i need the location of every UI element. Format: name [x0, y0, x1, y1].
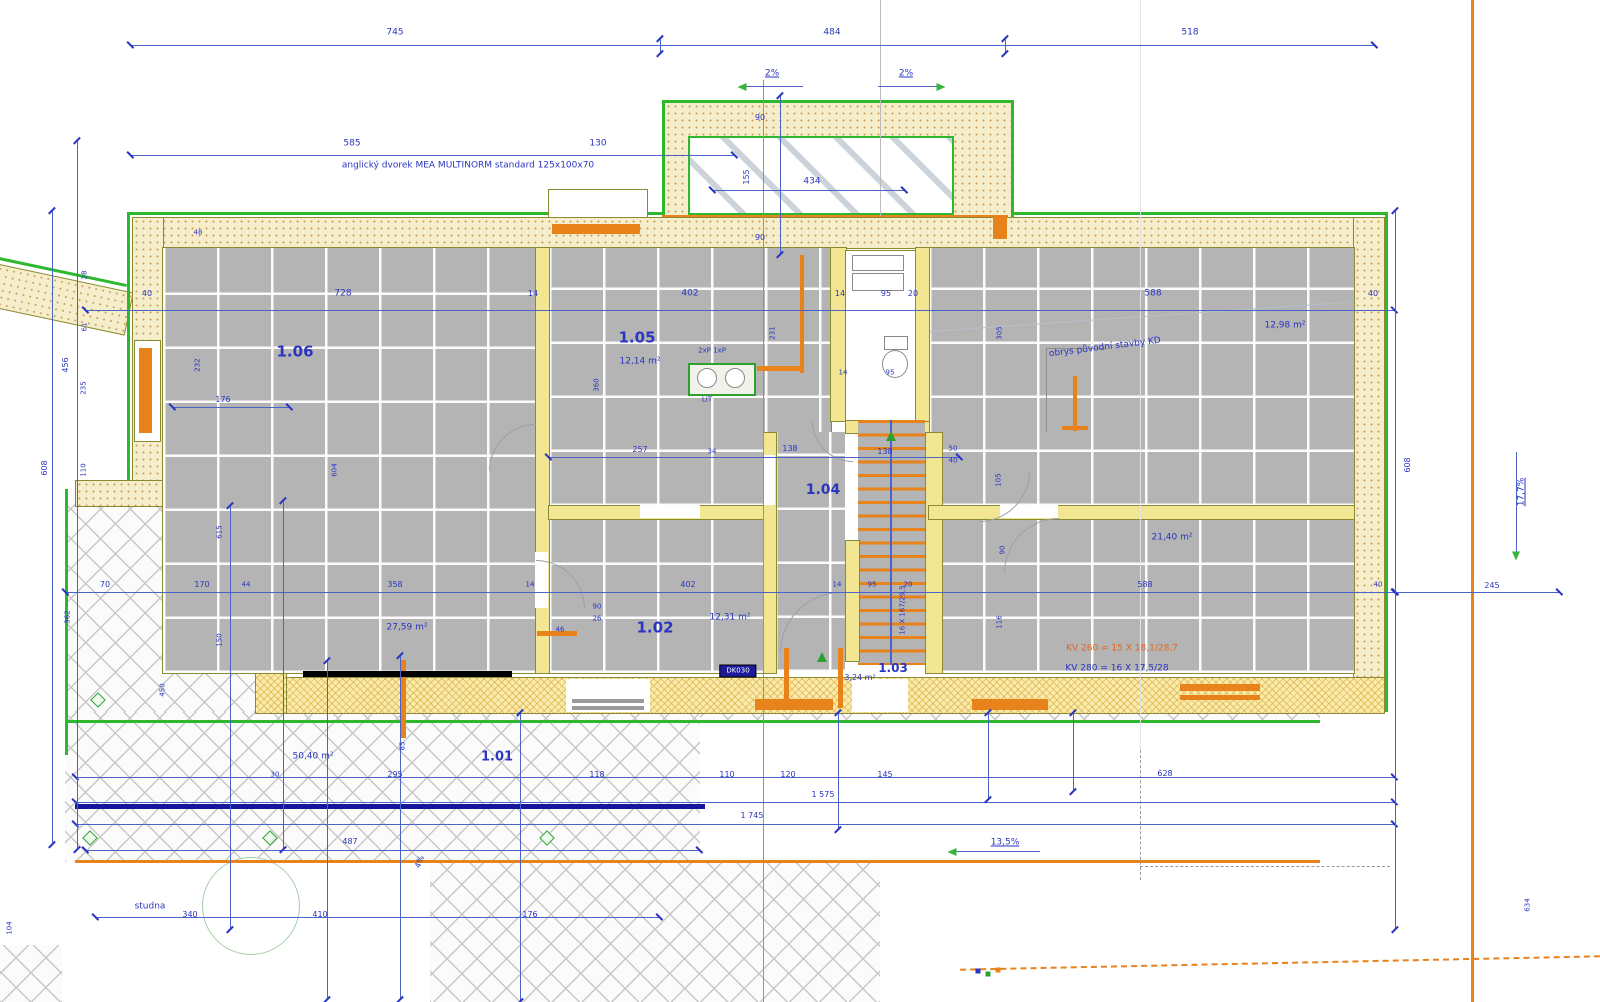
dim-line	[172, 407, 290, 408]
dimension-label: 138	[782, 445, 797, 453]
dimension-label: 295	[387, 771, 402, 779]
wall-bath-east	[915, 247, 930, 422]
dim-line	[85, 850, 700, 851]
wc-tank-icon	[884, 336, 908, 350]
pipe-right-h	[1062, 426, 1088, 430]
dimension-label: 588	[1144, 290, 1161, 299]
dim-line	[75, 824, 1395, 825]
dimension-label: 46	[556, 627, 565, 634]
dimension-label: 14	[835, 290, 845, 298]
paving-bottom	[430, 862, 880, 1002]
window-porch-right	[993, 217, 1007, 239]
dimension-label: 118	[589, 771, 604, 779]
dormer-box	[548, 189, 648, 218]
room-1-06	[162, 247, 537, 674]
dimension-label: 176	[215, 396, 230, 404]
window-left	[139, 348, 152, 433]
dim-line	[65, 592, 1395, 593]
dimension-label: 138	[877, 448, 892, 456]
building-outline-left	[127, 212, 130, 492]
slope-4pct: 4%	[414, 855, 426, 870]
dimension-label: 402	[680, 581, 695, 589]
retaining-wall-line	[75, 804, 705, 809]
entry-door-leaf	[572, 699, 644, 703]
shelf-icon	[852, 273, 904, 291]
building-outline-right	[1385, 212, 1388, 712]
dimension-label: 116	[997, 615, 1004, 628]
dimension-label: 728	[334, 290, 351, 299]
area-1-05: 12,14 m²	[619, 358, 660, 367]
dimension-label: 14	[526, 582, 535, 589]
dimension-label: 110	[719, 771, 734, 779]
dimension-label: 402	[681, 290, 698, 299]
dim-line	[75, 802, 1395, 803]
center-axis	[763, 80, 764, 1002]
dimension-label: 40	[142, 290, 152, 298]
door-frame-right	[838, 648, 843, 708]
dimension-label: 90	[593, 604, 602, 611]
dimension-label: 34	[708, 449, 717, 456]
dimension-label: 90	[755, 114, 765, 122]
dim-tick	[660, 38, 661, 54]
dim-line	[780, 95, 781, 255]
dimension-label: 245	[1484, 582, 1499, 590]
dimension-label: 170	[194, 581, 209, 589]
dimension-label: 588	[1137, 581, 1152, 589]
existing-wall-line	[303, 671, 512, 677]
dimension-label: 20	[904, 582, 913, 589]
dimension-label: 30	[271, 772, 280, 779]
dimension-label: 90	[1000, 546, 1007, 555]
dimension-label: 360	[594, 378, 601, 391]
boundary-line-right	[1471, 0, 1474, 1002]
dimension-label: 105	[996, 473, 1003, 486]
dim-518: 518	[1181, 29, 1198, 38]
dim-line	[130, 155, 735, 156]
dimension-label: 95	[881, 290, 891, 298]
dim-line	[52, 210, 53, 845]
dimension-label: 305	[997, 326, 1004, 339]
dimension-label: LIT	[702, 397, 712, 404]
paving-corner	[0, 945, 62, 1002]
dimension-label: 61	[82, 323, 89, 332]
dimension-label: 456	[62, 357, 70, 372]
dim-line	[1395, 210, 1396, 930]
dimension-label: 14	[528, 290, 538, 298]
dimension-label: 28	[82, 271, 89, 280]
dimension-label: 232	[195, 358, 202, 371]
dashed-line-right-v	[1140, 750, 1141, 880]
dimension-label: 40	[949, 458, 958, 465]
dimension-label: 608	[41, 460, 49, 475]
sink-left-icon	[697, 368, 717, 388]
dimension-label: 40	[1374, 582, 1383, 589]
dimension-label: 50	[949, 446, 958, 453]
site-line-bottom	[75, 860, 1320, 863]
stair-note-blue: KV 280 = 16 X 17,5/28	[1065, 665, 1168, 674]
pipe-right-v	[1073, 376, 1077, 431]
porch-glazing	[688, 136, 954, 215]
dim-484: 484	[823, 29, 840, 38]
dim-tick	[1005, 38, 1006, 54]
dimension-label: 130	[589, 140, 606, 149]
dimension-label: 90	[755, 234, 765, 242]
door-frame-left	[784, 648, 789, 708]
dim-line	[712, 190, 905, 191]
dimension-label: 44	[242, 582, 251, 589]
dim-line	[95, 917, 660, 918]
paving-terrace	[65, 712, 700, 862]
dim-line	[520, 712, 521, 1002]
dim-line	[130, 45, 1375, 46]
well-circle	[202, 857, 300, 955]
dimension-label: 231	[770, 326, 777, 339]
stair-stringer	[845, 540, 860, 662]
stair-door-gap	[852, 679, 908, 712]
room-number-1-01: 1.01	[481, 751, 513, 764]
dim-line	[327, 660, 328, 1000]
dim-line	[1073, 712, 1074, 792]
room-number-1-06: 1.06	[276, 345, 313, 360]
dimension-label: 1 575	[812, 791, 835, 799]
window-bottom-3b	[1180, 695, 1260, 700]
arrow-down-icon	[1512, 552, 1520, 561]
dot-icon	[996, 968, 1001, 973]
element-badge: DK030	[719, 665, 756, 678]
dimension-label: 20	[908, 290, 918, 298]
dimension-label: 150	[217, 633, 224, 646]
dim-line	[1395, 592, 1560, 593]
dimension-label: 155	[743, 169, 751, 184]
dimension-label: 1 745	[741, 812, 764, 820]
slope-17-7pct: 17,7%	[1518, 478, 1527, 507]
wall-stair-east	[925, 432, 943, 674]
dot-icon	[986, 972, 991, 977]
arrow-right-icon	[937, 83, 946, 91]
dimension-label: 604	[332, 463, 339, 476]
dimension-label: 615	[217, 525, 224, 538]
arrow-left-icon	[738, 83, 747, 91]
terrace-outline-bottom	[65, 720, 1320, 723]
washer-icon	[852, 255, 904, 271]
slope-line-2a	[745, 86, 803, 87]
dimension-label: 176	[522, 911, 537, 919]
passage-kitchen	[640, 505, 700, 518]
dimension-label: 14	[833, 582, 842, 589]
dim-line	[230, 505, 231, 930]
dimension-label: 70	[100, 581, 110, 589]
arrow-left-icon	[948, 848, 957, 856]
dim-745: 745	[386, 29, 403, 38]
window-bottom-1	[755, 699, 833, 710]
dot-icon	[976, 969, 981, 974]
dimension-label: 40	[1368, 290, 1378, 298]
slope-2pct-right: 2%	[899, 70, 913, 79]
dimension-label: 362	[65, 610, 72, 623]
dim-line	[548, 457, 960, 458]
dimension-label: 85	[400, 742, 407, 751]
dimension-label: 95	[868, 582, 877, 589]
dimension-label: 585	[343, 140, 360, 149]
room-number-1-03: 1.03	[878, 662, 908, 674]
dim-line	[85, 310, 1395, 311]
dimension-label: 2xP 1xP	[698, 348, 726, 355]
dim-line	[988, 712, 989, 800]
area-1-02: 12,31 m²	[709, 614, 750, 623]
dimension-label: 120	[780, 771, 795, 779]
note-well: studna	[135, 903, 166, 912]
dimension-label: 628	[1157, 770, 1172, 778]
dimension-label: 358	[387, 581, 402, 589]
dimension-label: 110	[81, 463, 88, 476]
dimension-label: 104	[7, 921, 14, 934]
slope-line-2b	[878, 86, 938, 87]
dim-line	[838, 712, 839, 830]
tri-up-icon	[817, 652, 827, 662]
stair-spec: 16 X 167/29,5	[900, 585, 907, 634]
area-right-bottom: 21,40 m²	[1151, 534, 1192, 543]
door-gap-1-04	[763, 455, 775, 505]
note-english-area: anglický dvorek MEA MULTINORM standard 1…	[342, 162, 594, 171]
slope-2pct-left: 2%	[765, 70, 779, 79]
dimension-label: 410	[312, 911, 327, 919]
window-bottom-2	[972, 699, 1048, 710]
tri-up-icon	[886, 431, 896, 441]
wall-1-06-1-05	[535, 247, 550, 674]
dimension-label: 634	[1525, 898, 1532, 911]
dimension-label: 450	[160, 683, 167, 696]
dimension-label: 487	[342, 838, 357, 846]
slope-line-13-5	[955, 851, 1040, 852]
section-line-right	[1140, 0, 1141, 750]
dimension-label: 434	[803, 178, 820, 187]
dimension-label: 340	[182, 911, 197, 919]
dimension-label: 608	[1404, 457, 1412, 472]
room-number-1-04: 1.04	[806, 483, 841, 497]
dim-line	[400, 655, 401, 1000]
dimension-label: 145	[877, 771, 892, 779]
area-1-03: 3,24 m²	[844, 674, 875, 682]
dimension-label: 95	[886, 370, 895, 377]
section-line-top	[880, 0, 881, 216]
sink-right-icon	[725, 368, 745, 388]
room-number-1-02: 1.02	[636, 621, 673, 636]
window-bottom-3a	[1180, 684, 1260, 691]
dim-line	[77, 140, 78, 850]
floor-plan-canvas: 7454845182%2%585130anglický dvorek MEA M…	[0, 0, 1600, 1002]
room-right-top	[928, 247, 1355, 507]
dimension-label: 14	[839, 370, 848, 377]
dimension-label: 48	[194, 230, 203, 237]
entry-door-leaf2	[572, 706, 644, 710]
area-1-06: 27,59 m²	[386, 624, 427, 633]
pipe-kitchen-v	[800, 255, 804, 373]
area-1-01: 50,40 m²	[292, 753, 333, 762]
boundary-dashed-bottom	[960, 955, 1600, 970]
area-right-top: 12,98 m²	[1264, 322, 1305, 331]
dim-line	[283, 500, 284, 850]
dimension-label: 26	[593, 616, 602, 623]
dashed-rect-right	[1140, 866, 1390, 867]
room-number-1-05: 1.05	[618, 331, 655, 346]
dimension-label: 235	[81, 381, 88, 394]
slope-13-5pct: 13,5%	[991, 839, 1020, 848]
stair-note-orange: KV 260 = 15 X 18,1/28,7	[1066, 645, 1178, 654]
window-top	[552, 224, 640, 234]
original-outline-corner-v	[1046, 348, 1047, 432]
dimension-label: 257	[632, 446, 647, 454]
